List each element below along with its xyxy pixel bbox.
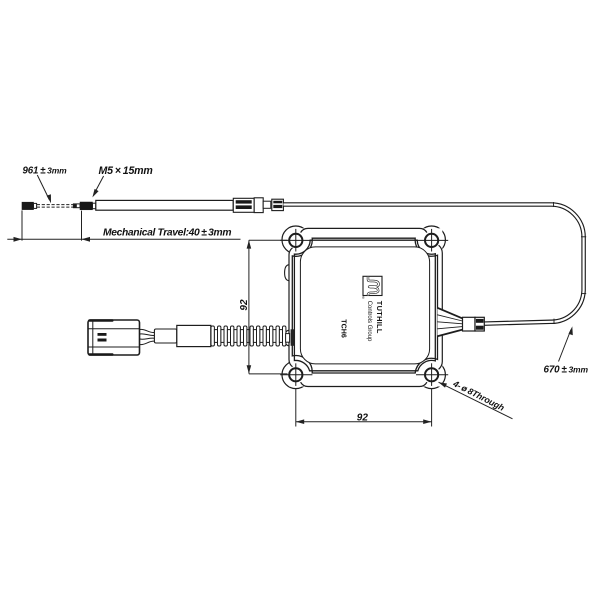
svg-text:TUTHILL: TUTHILL <box>375 301 384 334</box>
svg-text:92: 92 <box>357 413 369 424</box>
svg-text:Controls Group: Controls Group <box>366 301 372 342</box>
svg-text:961 ± 3mm: 961 ± 3mm <box>23 166 68 177</box>
svg-text:®: ® <box>362 296 365 300</box>
svg-text:670 ± 3mm: 670 ± 3mm <box>544 365 589 376</box>
svg-text:92: 92 <box>239 299 250 311</box>
svg-text:M5 × 15mm: M5 × 15mm <box>99 165 153 177</box>
svg-text:TCH6: TCH6 <box>339 319 347 338</box>
svg-text:Mechanical Travel:40 ± 3mm: Mechanical Travel:40 ± 3mm <box>103 227 231 238</box>
